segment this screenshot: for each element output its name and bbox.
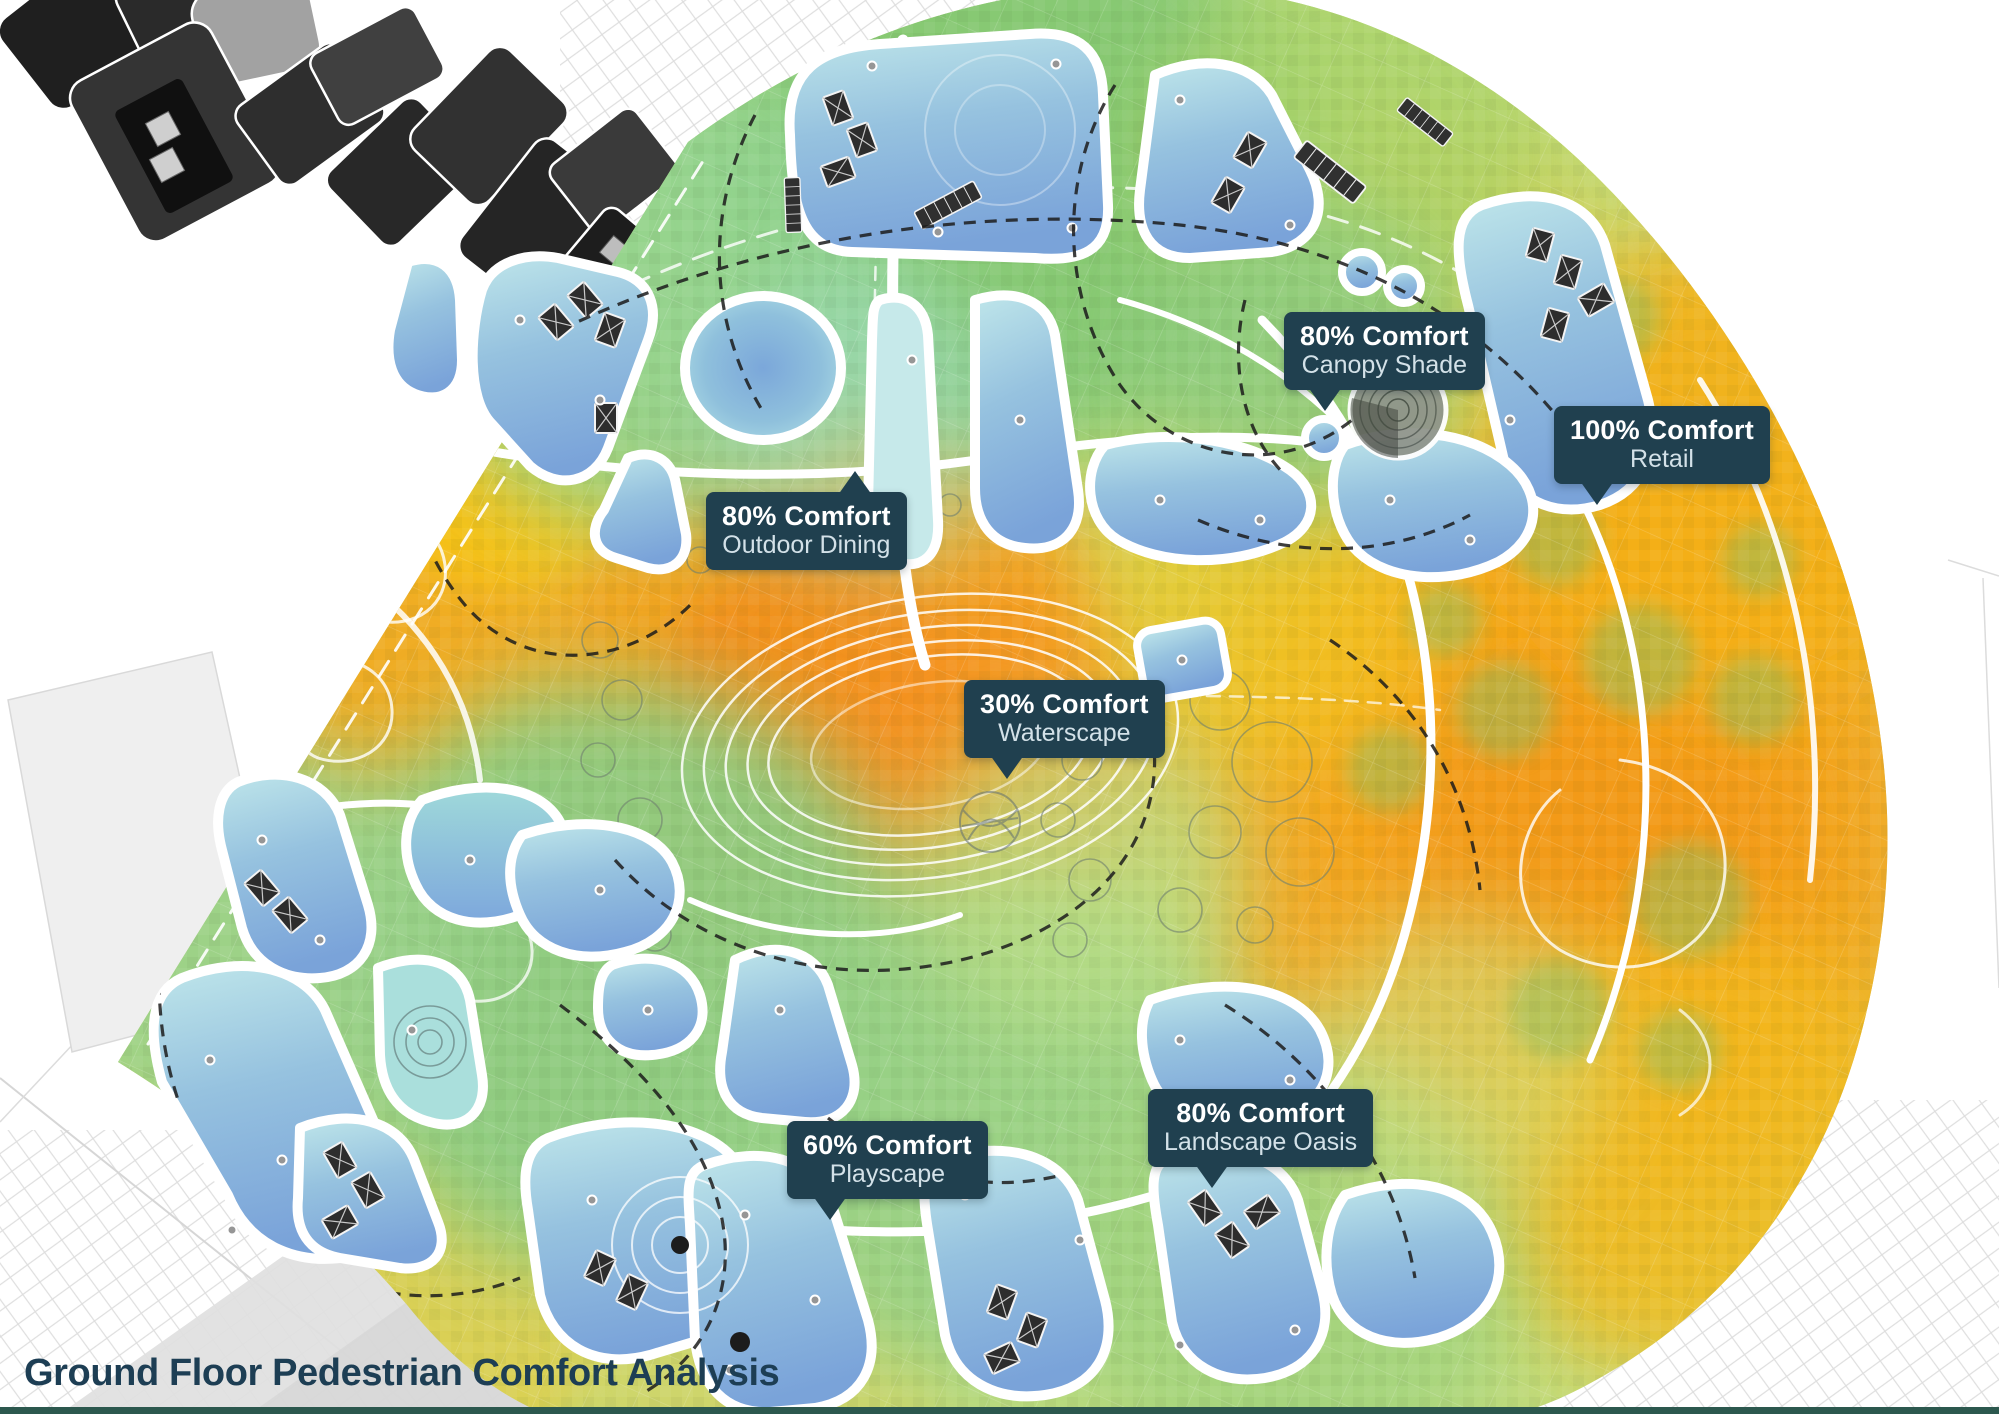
callout-zone-name: Waterscape [980, 719, 1149, 747]
callout-pointer [838, 471, 872, 495]
callout-percent: 60% Comfort [803, 1130, 972, 1160]
callout-percent: 80% Comfort [1300, 321, 1469, 351]
callout-zone-name: Playscape [803, 1160, 972, 1188]
callout-zone-name: Canopy Shade [1300, 351, 1469, 379]
callout-canopy-shade: 80% Comfort Canopy Shade [1284, 312, 1485, 390]
callout-zone-name: Outdoor Dining [722, 531, 891, 559]
callout-waterscape: 30% Comfort Waterscape [964, 680, 1165, 758]
callout-playscape: 60% Comfort Playscape [787, 1121, 988, 1199]
page-title: Ground Floor Pedestrian Comfort Analysis [24, 1352, 779, 1395]
callout-percent: 100% Comfort [1570, 415, 1754, 445]
callout-pointer [1308, 387, 1342, 411]
footer-accent-strip [0, 1407, 1999, 1414]
pedestrian-comfort-analysis-plan: 80% Comfort Outdoor Dining 80% Comfort C… [0, 0, 1999, 1414]
callout-pointer [813, 1196, 847, 1220]
callout-retail: 100% Comfort Retail [1554, 406, 1770, 484]
callout-pointer [1580, 481, 1614, 505]
callout-pointer [1195, 1164, 1229, 1188]
callout-outdoor-dining: 80% Comfort Outdoor Dining [706, 492, 907, 570]
callout-percent: 30% Comfort [980, 689, 1149, 719]
callout-pointer [990, 755, 1024, 779]
callout-zone-name: Landscape Oasis [1164, 1128, 1357, 1156]
callout-percent: 80% Comfort [722, 501, 891, 531]
callout-percent: 80% Comfort [1164, 1098, 1357, 1128]
callout-landscape-oasis: 80% Comfort Landscape Oasis [1148, 1089, 1373, 1167]
callout-zone-name: Retail [1570, 445, 1754, 473]
